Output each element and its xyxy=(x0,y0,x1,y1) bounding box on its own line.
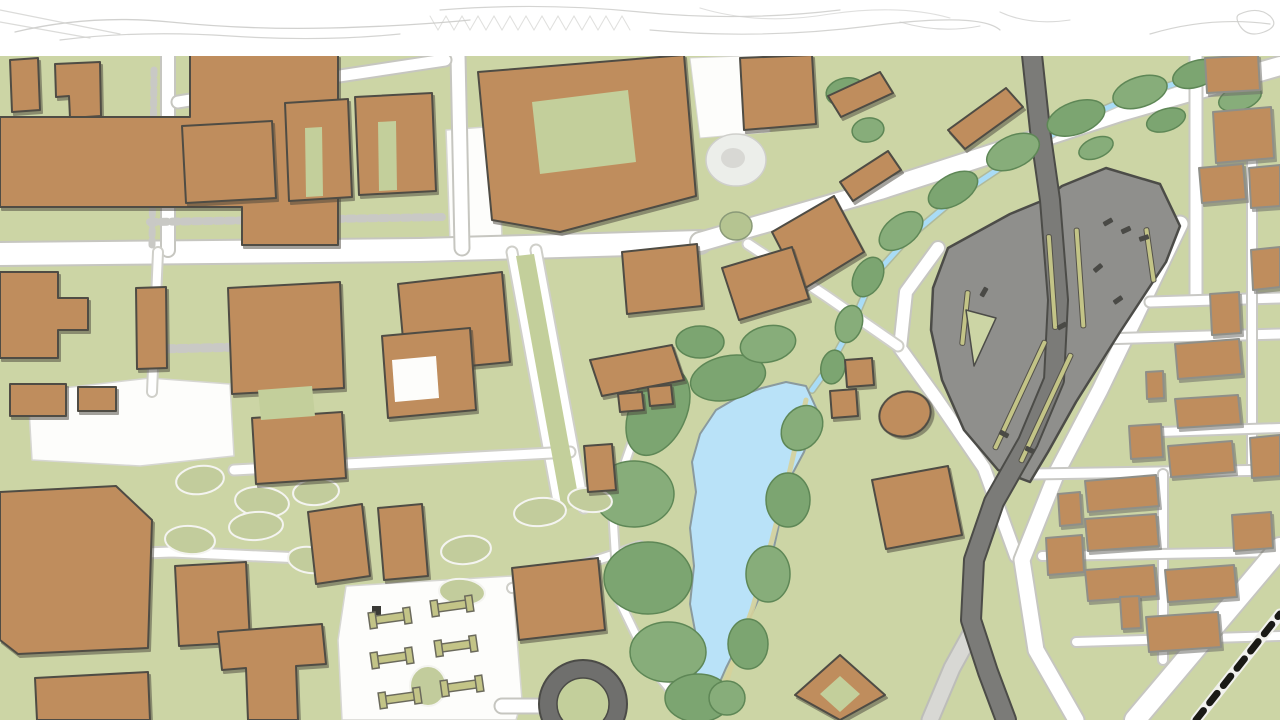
building-courtyard-center xyxy=(228,282,344,394)
top-band-sketch xyxy=(0,0,1280,56)
page-root xyxy=(0,0,1280,720)
courtyard-green xyxy=(532,90,636,174)
campus-map-svg xyxy=(0,0,1280,720)
roundabout-island-north xyxy=(720,212,752,240)
main-road-west xyxy=(0,242,700,254)
campus-map-image xyxy=(0,0,1280,720)
